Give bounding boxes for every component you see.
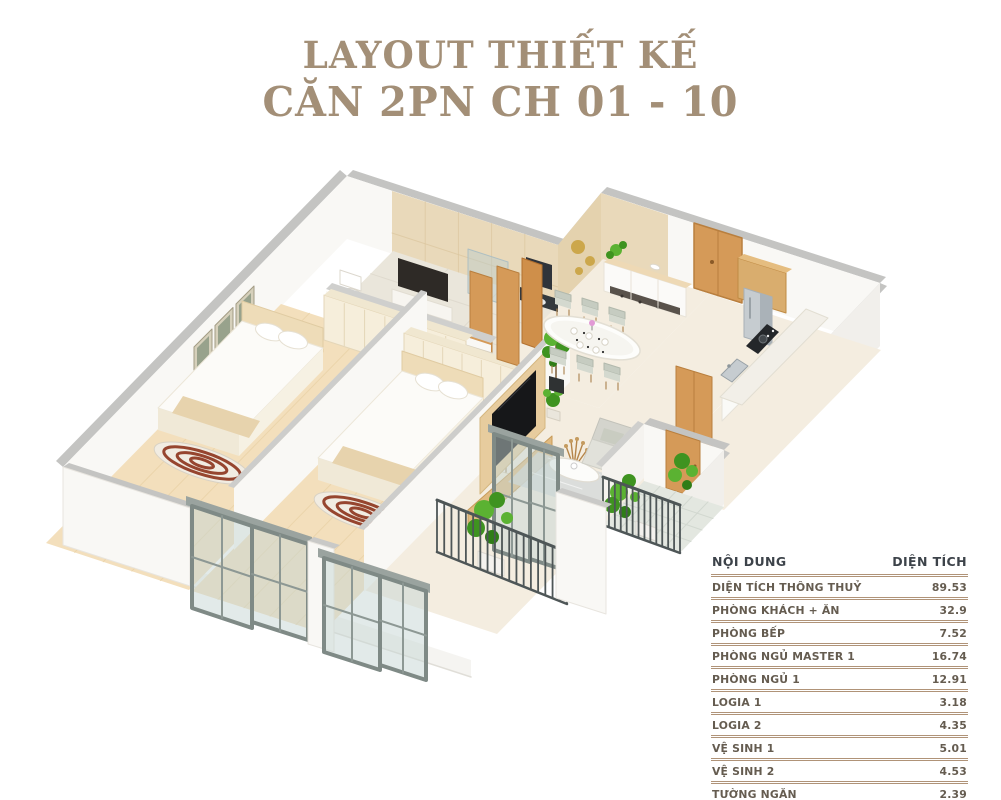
room-name-cell: LOGIA 1 [712, 696, 762, 709]
room-area-cell: 7.52 [940, 627, 967, 640]
room-area-cell: 3.18 [940, 696, 967, 709]
table-row: VỆ SINH 15.01 [711, 738, 968, 761]
room-name-cell: LOGIA 2 [712, 719, 762, 732]
page: LAYOUT THIẾT KẾ CĂN 2PN CH 01 - 10 NỘI D… [0, 0, 1001, 800]
room-area-cell: 4.35 [940, 719, 967, 732]
table-row: VỆ SINH 24.53 [711, 761, 968, 784]
room-name-cell: VỆ SINH 1 [712, 742, 774, 755]
room-area-cell: 5.01 [940, 742, 967, 755]
room-name-cell: PHÒNG NGỦ MASTER 1 [712, 650, 855, 663]
table-row: PHÒNG BẾP7.52 [711, 623, 968, 646]
room-area-cell: 16.74 [932, 650, 967, 663]
table-row: PHÒNG NGỦ MASTER 116.74 [711, 646, 968, 669]
header-noi-dung: NỘI DUNG [712, 554, 787, 569]
table-row: PHÒNG NGỦ 112.91 [711, 669, 968, 692]
table-row: LOGIA 13.18 [711, 692, 968, 715]
room-name-cell: PHÒNG NGỦ 1 [712, 673, 800, 686]
table-row: LOGIA 24.35 [711, 715, 968, 738]
room-area-cell: 4.53 [940, 765, 967, 778]
room-name-cell: TƯỜNG NGĂN [712, 788, 797, 800]
room-area-cell: 32.9 [940, 604, 967, 617]
room-name-cell: DIỆN TÍCH THÔNG THUỶ [712, 581, 861, 594]
room-name-cell: VỆ SINH 2 [712, 765, 774, 778]
room-area-cell: 89.53 [932, 581, 967, 594]
table-row: DIỆN TÍCH THÔNG THUỶ89.53 [711, 577, 968, 600]
table-row: PHÒNG KHÁCH + ĂN32.9 [711, 600, 968, 623]
room-area-cell: 12.91 [932, 673, 967, 686]
area-table-header: NỘI DUNG DIỆN TÍCH [711, 552, 968, 577]
table-row: TƯỜNG NGĂN2.39 [711, 784, 968, 800]
room-name-cell: PHÒNG KHÁCH + ĂN [712, 604, 840, 617]
room-area-cell: 2.39 [940, 788, 967, 800]
header-dien-tich: DIỆN TÍCH [892, 554, 967, 569]
room-name-cell: PHÒNG BẾP [712, 627, 785, 640]
area-table: NỘI DUNG DIỆN TÍCH DIỆN TÍCH THÔNG THUỶ8… [711, 552, 968, 800]
